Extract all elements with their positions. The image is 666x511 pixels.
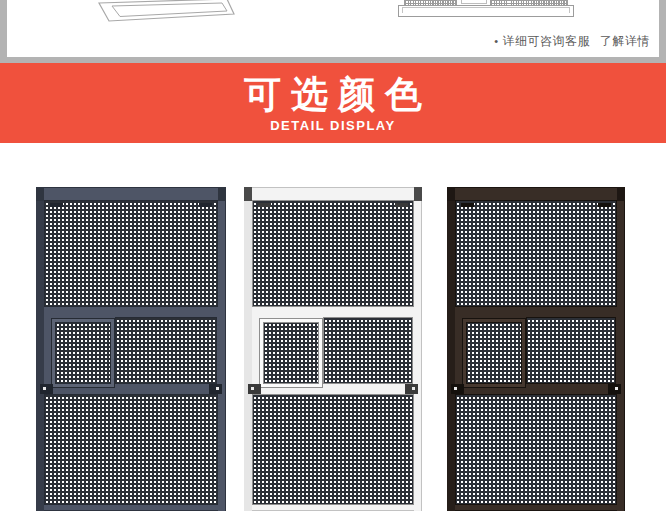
door-mesh-small: [55, 322, 111, 384]
sketch-center-box-inner: [461, 0, 487, 4]
roller-hardware: [395, 203, 408, 207]
roller-hardware: [258, 203, 271, 207]
roller-hardware: [199, 203, 212, 207]
door-rail-left: [36, 187, 44, 511]
door-mesh-middle: [115, 317, 217, 384]
door-corner-bracket: [244, 187, 252, 201]
screen-door-dark-gray: [36, 187, 226, 511]
door-rail-left: [244, 187, 252, 511]
latch-left: [248, 384, 261, 394]
latch-left: [451, 384, 464, 394]
screen-window-sketch-fragment: [398, 0, 574, 16]
roller-hardware: [598, 203, 611, 207]
note-bullet: •: [494, 35, 498, 47]
door-corner-bracket: [218, 187, 226, 201]
door-sliding-panel: [52, 319, 114, 387]
door-corner-bracket: [36, 187, 44, 201]
section-border-left: [0, 0, 7, 57]
door-rail-left: [447, 187, 455, 511]
customer-service-note: •详细可咨询客服了解详情: [494, 33, 650, 50]
door-mesh-bottom: [44, 394, 218, 505]
screen-door-dark-brown: [447, 187, 625, 511]
roller-hardware: [50, 203, 63, 207]
door-rail-right: [414, 187, 422, 511]
door-sliding-panel: [260, 319, 322, 387]
page: •详细可咨询客服了解详情 可选颜色 DETAIL DISPLAY: [0, 0, 666, 511]
note-text: 详细可咨询客服: [503, 34, 591, 48]
previous-section-bottom: •详细可咨询客服了解详情: [0, 0, 666, 63]
door-rail-right: [617, 187, 625, 511]
latch-left: [40, 384, 53, 394]
door-mesh-small: [466, 322, 522, 384]
sketch-bottom-frame: [398, 5, 574, 17]
door-sliding-panel: [463, 319, 525, 387]
door-mesh-bottom: [252, 394, 414, 505]
latch-right: [209, 384, 222, 394]
section-border-right: [659, 0, 666, 57]
door-mesh-bottom: [455, 394, 617, 505]
section-subtitle: DETAIL DISPLAY: [270, 118, 396, 133]
door-rail-right: [218, 187, 226, 511]
door-mesh-small: [263, 322, 319, 384]
door-mesh-middle: [323, 317, 413, 384]
door-mesh-top: [44, 200, 218, 307]
latch-right: [405, 384, 418, 394]
door-corner-bracket: [617, 187, 625, 201]
section-banner: 可选颜色 DETAIL DISPLAY: [0, 63, 666, 143]
roller-hardware: [461, 203, 474, 207]
door-corner-bracket: [414, 187, 422, 201]
screen-door-white: [244, 187, 422, 511]
latch-right: [608, 384, 621, 394]
section-title: 可选颜色: [234, 73, 432, 117]
door-corner-bracket: [447, 187, 455, 201]
sketch-bottom-frame-inner: [402, 7, 570, 13]
door-mesh-top: [455, 200, 617, 307]
note-more-text: 了解详情: [600, 34, 650, 48]
door-mesh-middle: [526, 317, 616, 384]
window-sketch-fragment: [95, 0, 235, 22]
door-mesh-top: [252, 200, 414, 307]
